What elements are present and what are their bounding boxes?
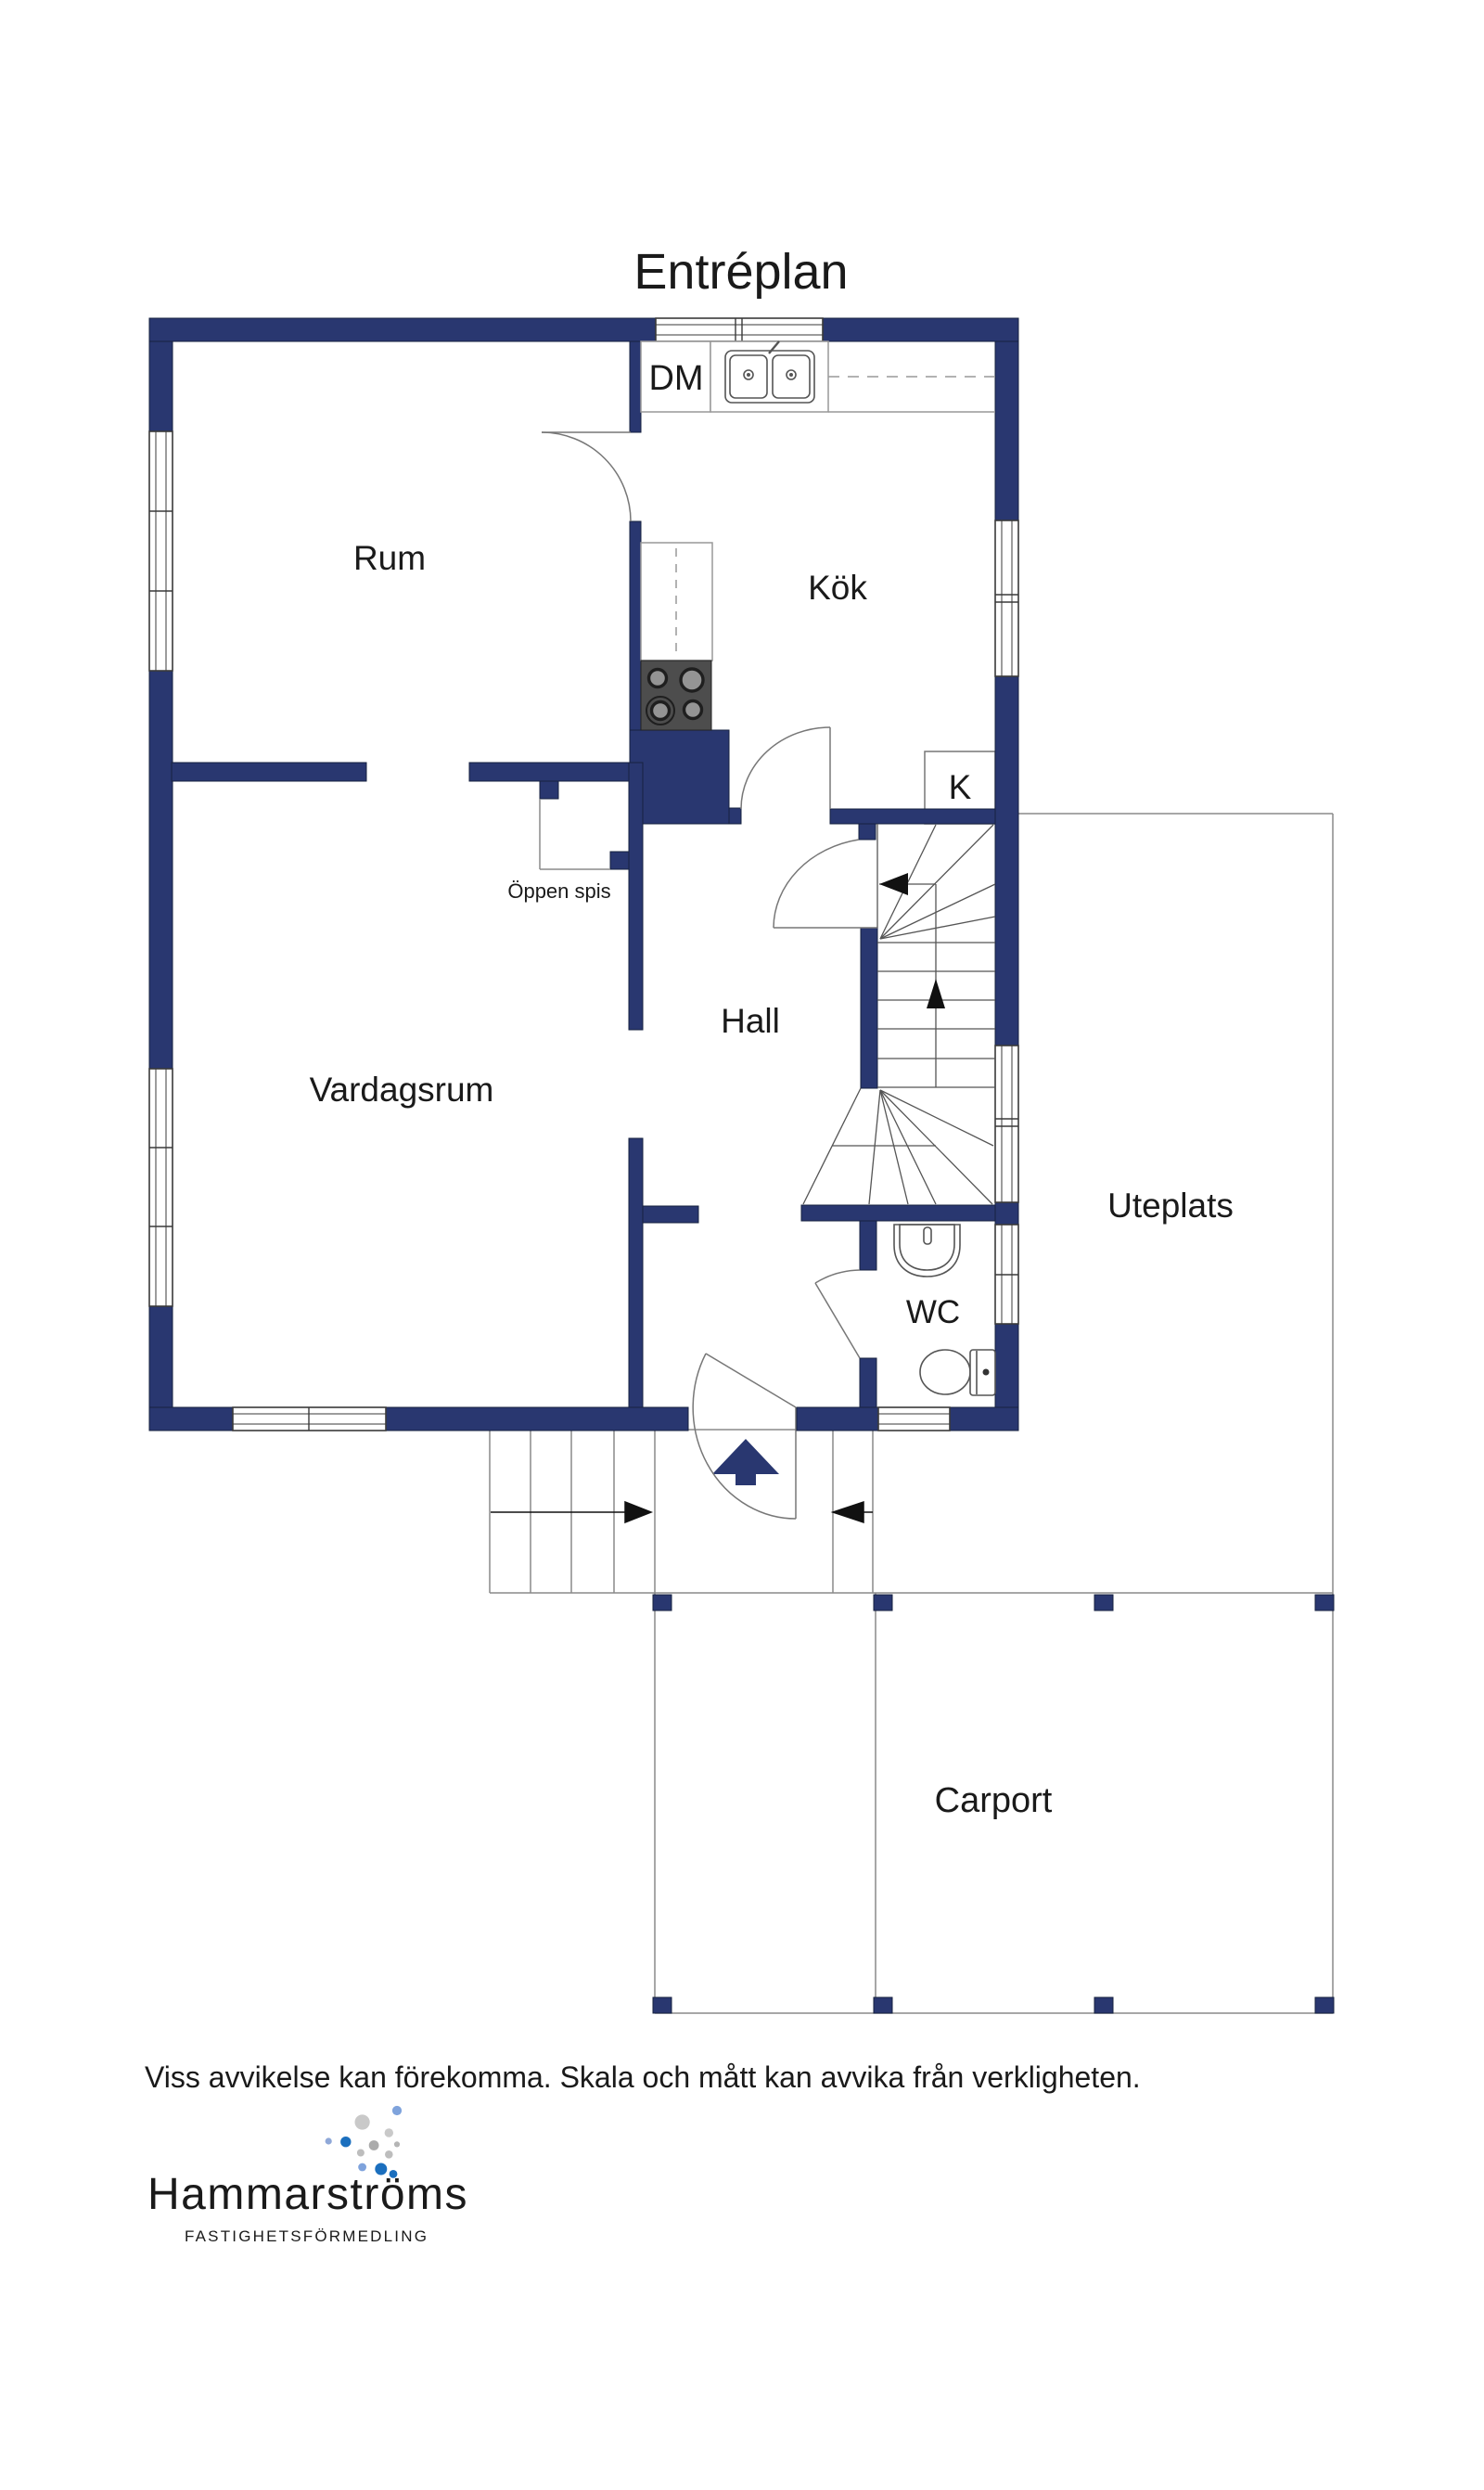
svg-text:Hall: Hall [721, 1002, 780, 1040]
svg-text:Rum: Rum [353, 539, 426, 577]
svg-text:Uteplats: Uteplats [1107, 1187, 1234, 1225]
svg-text:Kök: Kök [808, 569, 867, 607]
svg-text:DM: DM [648, 359, 703, 398]
svg-text:Entréplan: Entréplan [633, 244, 848, 300]
svg-text:K: K [949, 768, 972, 806]
svg-text:Öppen spis: Öppen spis [507, 879, 610, 903]
svg-text:Carport: Carport [935, 1781, 1053, 1820]
svg-text:FASTIGHETSFÖRMEDLING: FASTIGHETSFÖRMEDLING [185, 2227, 429, 2245]
svg-text:Viss avvikelse kan förekomma.: Viss avvikelse kan förekomma. Skala och … [145, 2060, 1141, 2094]
svg-text:Hammarströms: Hammarströms [147, 2170, 468, 2219]
svg-text:WC: WC [906, 1294, 960, 1330]
svg-text:Vardagsrum: Vardagsrum [310, 1071, 494, 1109]
